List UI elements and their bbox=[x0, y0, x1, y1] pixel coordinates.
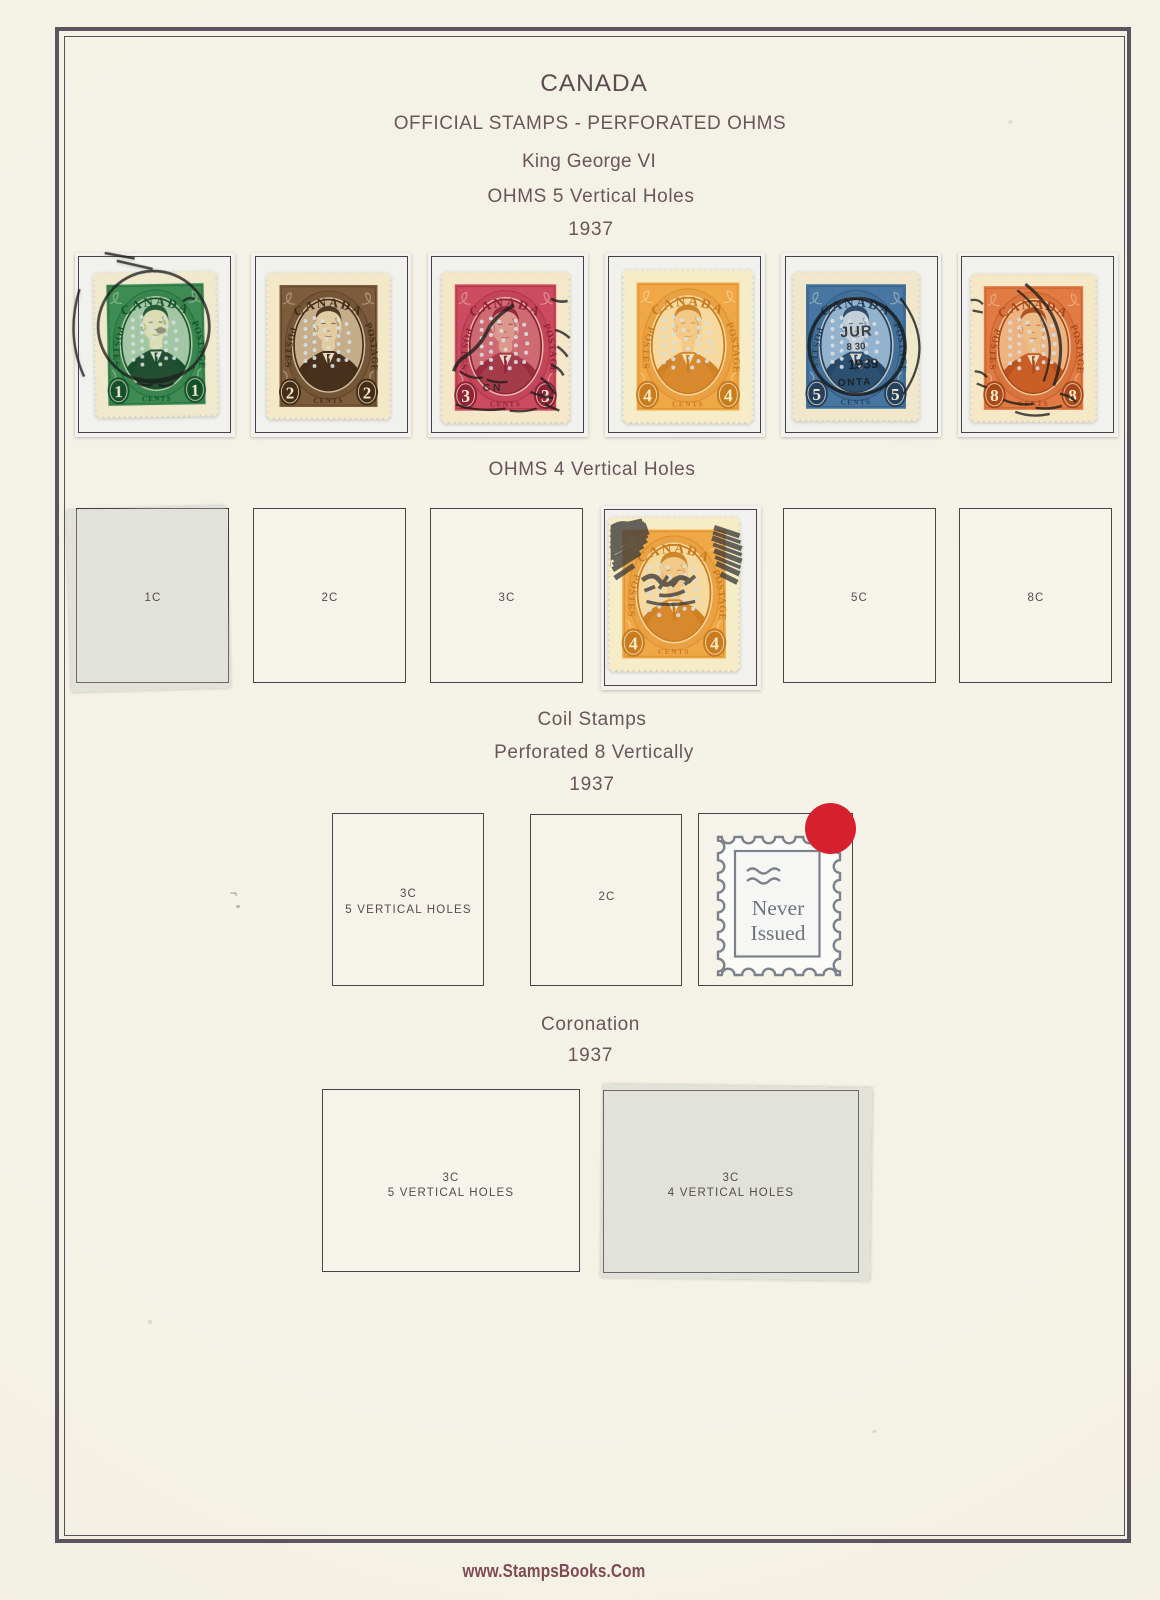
svg-text:ONTA: ONTA bbox=[837, 377, 872, 390]
svg-text:2: 2 bbox=[286, 384, 295, 403]
svg-text:JUR: JUR bbox=[840, 323, 873, 341]
svg-text:4: 4 bbox=[724, 386, 733, 406]
svg-text:8: 8 bbox=[990, 386, 999, 405]
svg-text:4: 4 bbox=[629, 633, 638, 653]
svg-text:8 30: 8 30 bbox=[846, 341, 865, 353]
svg-text:Issued: Issued bbox=[751, 921, 806, 945]
svg-text:4: 4 bbox=[710, 633, 719, 653]
svg-text:3: 3 bbox=[461, 386, 470, 406]
svg-text:1939: 1939 bbox=[847, 356, 879, 373]
svg-text:Never: Never bbox=[752, 896, 805, 920]
svg-text:2: 2 bbox=[363, 384, 372, 403]
svg-text:4: 4 bbox=[643, 386, 652, 406]
svg-text:5: 5 bbox=[891, 385, 900, 404]
svg-text:C N: C N bbox=[483, 383, 501, 394]
svg-text:1: 1 bbox=[191, 381, 200, 400]
svg-text:5: 5 bbox=[812, 385, 821, 404]
svg-text:1: 1 bbox=[114, 382, 123, 401]
